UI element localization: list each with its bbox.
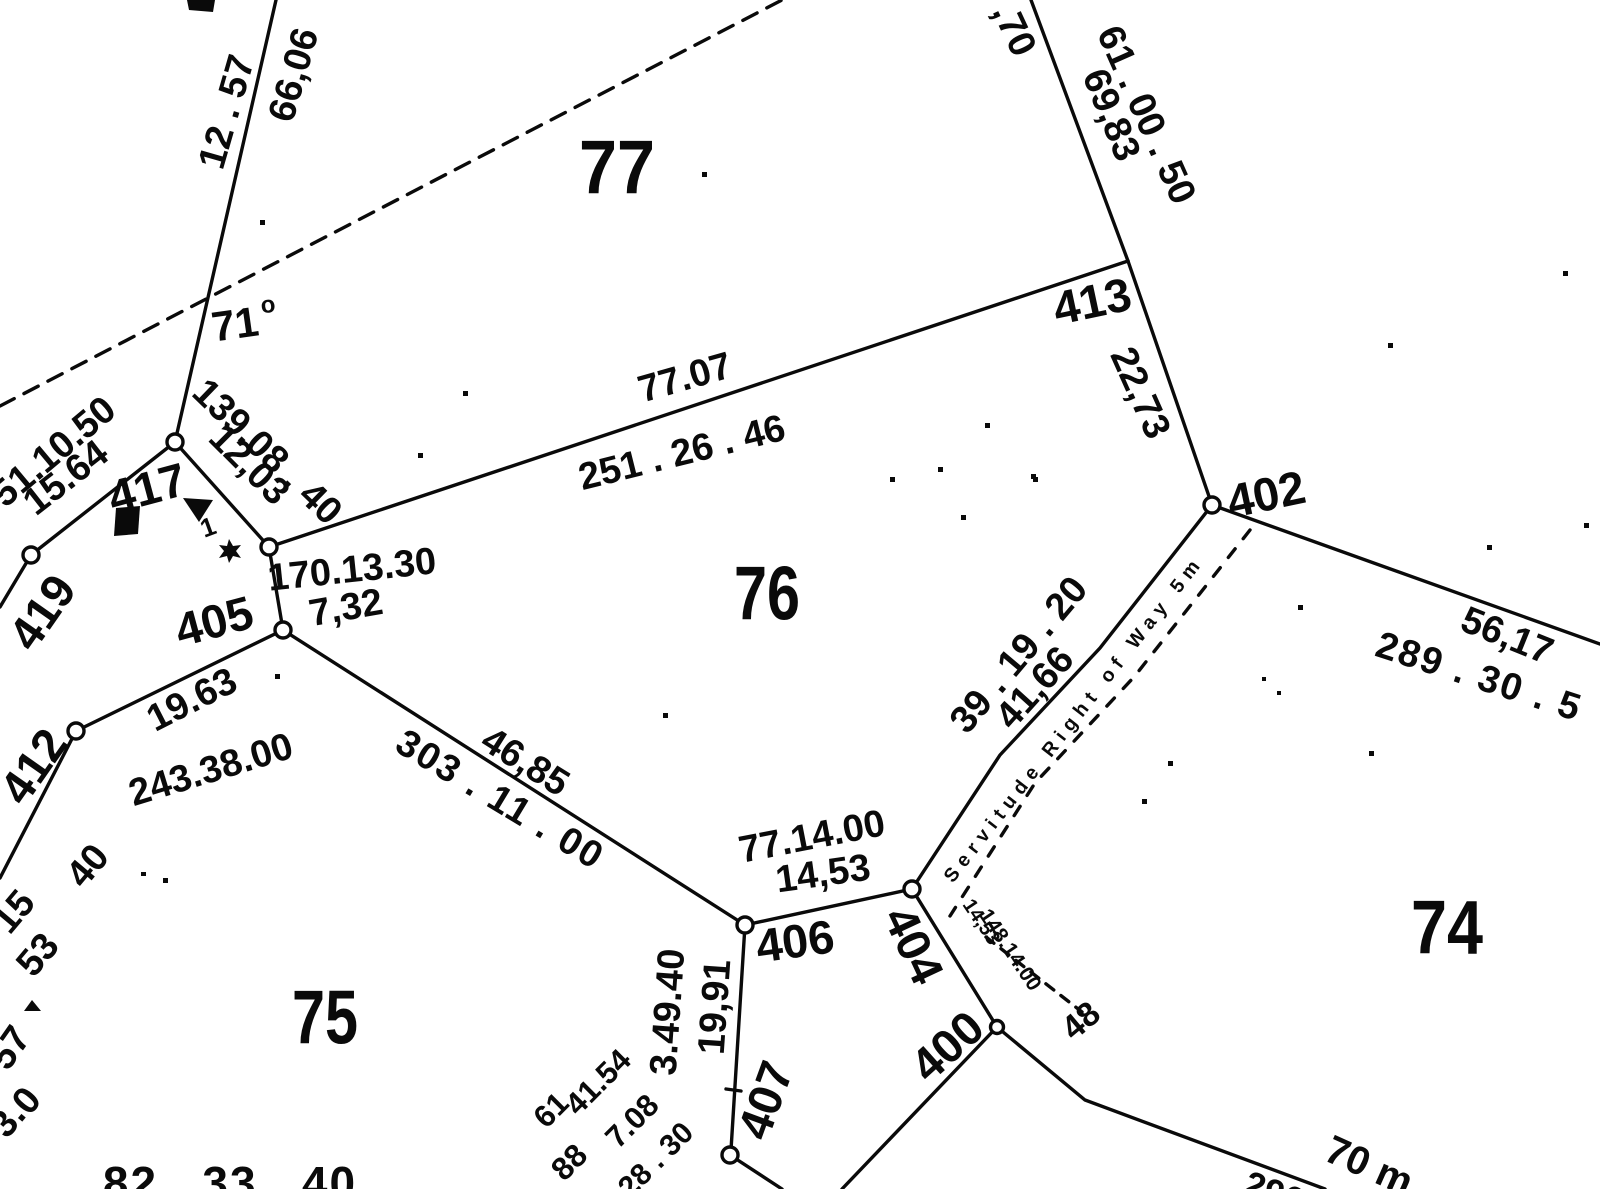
svg-text:3.49.40: 3.49.40 bbox=[643, 947, 694, 1076]
svg-text:76: 76 bbox=[734, 552, 800, 637]
svg-text:82 . 33 . 40: 82 . 33 . 40 bbox=[103, 1157, 357, 1189]
svg-text:406: 406 bbox=[752, 909, 837, 972]
svg-text:71: 71 bbox=[209, 297, 262, 350]
svg-text:74: 74 bbox=[1411, 886, 1483, 971]
svg-text:77: 77 bbox=[579, 126, 655, 211]
svg-text:19,91: 19,91 bbox=[691, 958, 740, 1056]
svg-text:75: 75 bbox=[292, 976, 358, 1061]
